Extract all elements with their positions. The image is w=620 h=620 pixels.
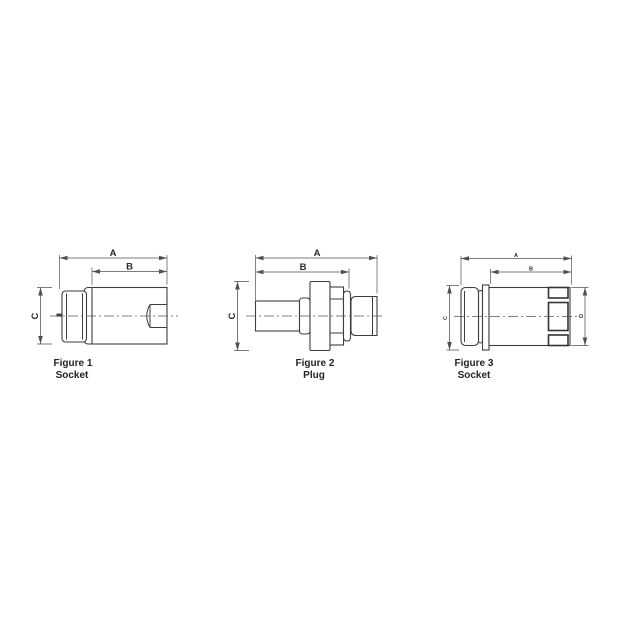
fig1-dim-label-b: B [126,262,133,273]
fig2-dim-label-a: A [314,248,321,259]
drawing-sheet: A B C Figure 1 Socket A B C Figure 2 Plu… [0,0,620,620]
fig2-dim-label-c: C [227,312,238,319]
technical-drawing-canvas: A B C Figure 1 Socket A B C Figure 2 Plu… [0,0,620,620]
fig3-dim-label-c: C [443,316,449,320]
fig3-groove-top [549,288,569,299]
fig2-caption-title: Figure 2 [296,358,335,369]
fig3-caption-title: Figure 3 [455,358,494,369]
fig1-dim-label-c: C [30,312,41,319]
fig3-dim-label-b: B [529,267,533,273]
fig3-caption-type: Socket [458,370,491,381]
fig3-groove-bottom [549,335,569,346]
fig1-dim-label-a: A [110,248,117,259]
fig2-caption-type: Plug [303,370,325,381]
fig3-dim-label-d: D [579,314,585,318]
fig1-caption-title: Figure 1 [54,358,93,369]
fig1-caption-type: Socket [56,370,89,381]
figure-1-socket-drawing: A B C Figure 1 Socket [30,248,178,381]
figure-2-plug-drawing: A B C Figure 2 Plug [227,248,384,381]
fig3-flange-washer [483,285,490,350]
figure-3-socket-drawing: A B C D Figure 3 Socket [443,253,589,381]
fig3-dim-label-a: A [514,253,518,259]
fig2-dim-label-b: B [300,262,307,273]
